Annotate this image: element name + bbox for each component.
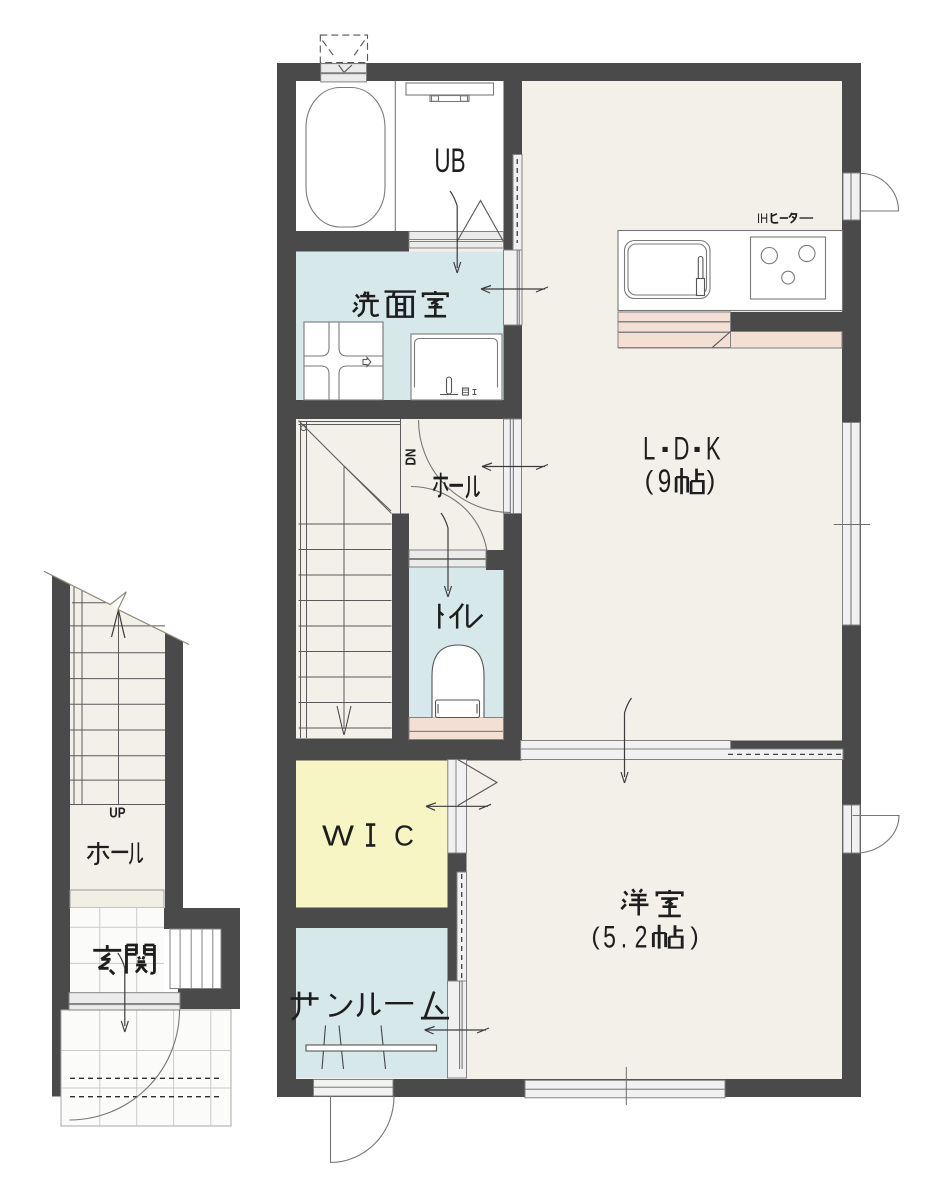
svg-text:C: C: [394, 820, 414, 851]
svg-text:DN: DN: [402, 449, 418, 466]
svg-text:2: 2: [635, 919, 648, 954]
svg-text:(: (: [645, 465, 654, 495]
svg-text:): ): [707, 465, 716, 495]
svg-text:K: K: [706, 430, 721, 466]
svg-text:): ): [690, 923, 698, 951]
svg-text:UB: UB: [434, 143, 465, 181]
svg-text:D: D: [674, 430, 690, 466]
svg-text:5: 5: [603, 919, 616, 954]
svg-text:W: W: [322, 820, 354, 852]
svg-text:UP: UP: [109, 804, 126, 820]
svg-text:IH: IH: [757, 211, 768, 226]
svg-text:.: .: [621, 919, 627, 954]
svg-text:9: 9: [658, 464, 672, 500]
svg-text:L: L: [643, 430, 655, 466]
svg-text:(: (: [591, 923, 600, 951]
